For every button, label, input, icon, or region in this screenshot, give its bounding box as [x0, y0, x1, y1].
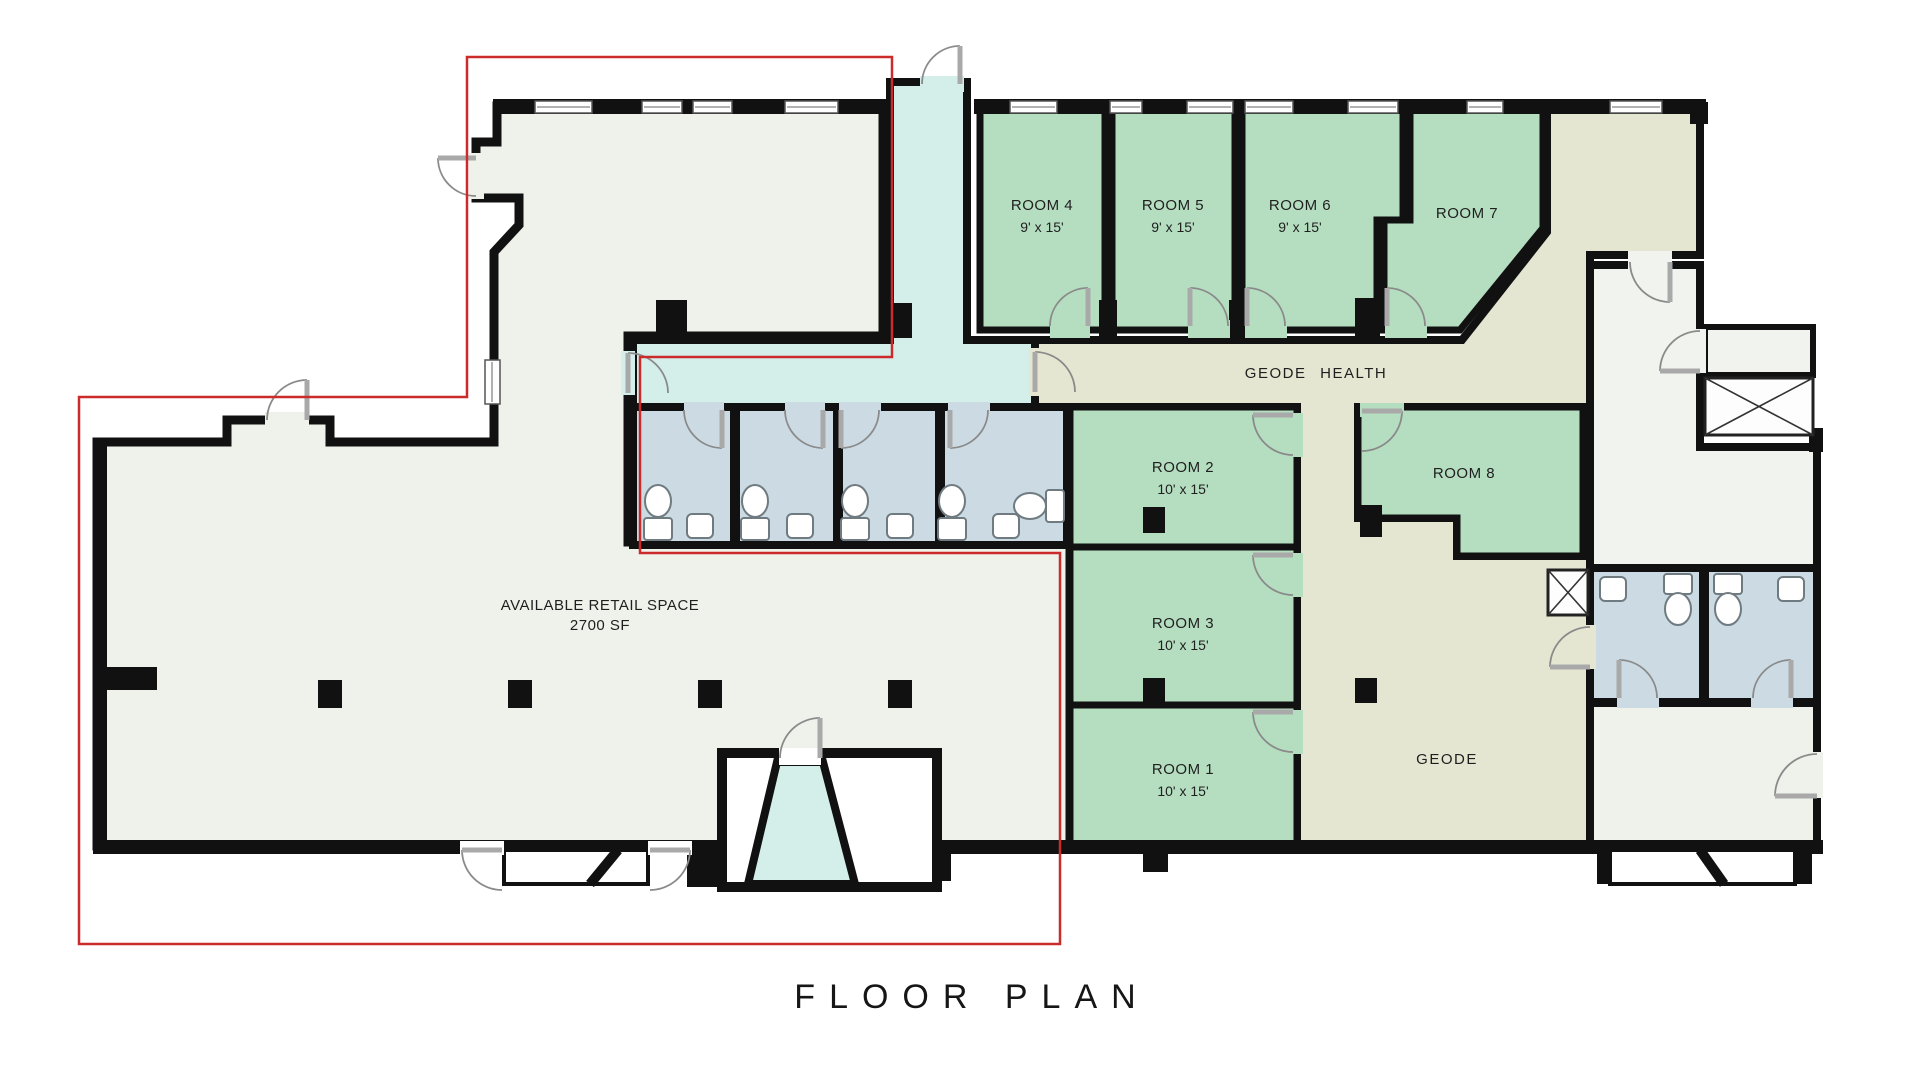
column	[1360, 505, 1382, 537]
toilet	[938, 485, 966, 540]
opening	[1289, 413, 1303, 457]
opening	[1584, 625, 1596, 669]
room-6-label: ROOM 6	[1269, 197, 1331, 214]
wall-stub	[883, 303, 912, 338]
room-2-dims: 10' x 15'	[1157, 481, 1208, 497]
opening	[1245, 320, 1287, 338]
room-5-label: ROOM 5	[1142, 197, 1204, 214]
room-4-label: ROOM 4	[1011, 197, 1073, 214]
bottom-right-room	[1590, 703, 1817, 846]
wall	[974, 99, 1706, 114]
sink	[687, 514, 713, 538]
opening	[1628, 251, 1672, 271]
sink	[1600, 577, 1626, 601]
door-jamb	[1355, 298, 1380, 338]
room-8-label: ROOM 8	[1433, 465, 1495, 482]
toilet	[1664, 574, 1692, 625]
right-annex-room	[1705, 327, 1813, 375]
toilet	[1714, 574, 1742, 625]
room-2-area	[1070, 407, 1297, 547]
opening	[839, 402, 881, 416]
opening	[684, 402, 724, 416]
opening	[785, 402, 825, 416]
column	[1355, 678, 1377, 703]
door-swing-arc	[462, 850, 502, 890]
floor-plan-drawing: ROOM 4 9' x 15' ROOM 5 9' x 15' ROOM 6 9…	[0, 0, 1920, 1075]
opening	[1050, 320, 1090, 338]
wall	[93, 438, 107, 852]
page-title: FLOOR PLAN	[794, 978, 1149, 1016]
opening	[920, 76, 964, 92]
pier	[687, 843, 722, 887]
opening	[265, 412, 309, 428]
corner-block	[1690, 102, 1708, 124]
toilet	[741, 485, 769, 540]
door-jamb	[1229, 300, 1247, 338]
sink	[1778, 577, 1804, 601]
pier	[1795, 843, 1812, 884]
opening	[1289, 710, 1303, 754]
room-3-label: ROOM 3	[1152, 615, 1214, 632]
opening	[1385, 320, 1427, 338]
column	[318, 680, 342, 708]
column	[698, 680, 722, 708]
room-1-dims: 10' x 15'	[1157, 783, 1208, 799]
opening	[948, 402, 990, 416]
sink	[787, 514, 813, 538]
room-2-label: ROOM 2	[1152, 459, 1214, 476]
opening	[1289, 553, 1303, 597]
room-3-dims: 10' x 15'	[1157, 637, 1208, 653]
opening	[1751, 694, 1793, 708]
storefront-bay	[504, 850, 648, 884]
opening	[1617, 694, 1659, 708]
restroom-divider	[1699, 572, 1709, 698]
column	[1143, 507, 1165, 533]
room-4-dims: 9' x 15'	[1020, 219, 1063, 235]
pier	[1143, 846, 1168, 872]
geode-health-label: GEODE HEALTH	[1245, 365, 1387, 382]
opening	[779, 748, 821, 765]
column	[888, 680, 912, 708]
room-5-area	[1112, 106, 1235, 330]
sink	[887, 514, 913, 538]
room-1-label: ROOM 1	[1152, 761, 1214, 778]
sink	[993, 514, 1019, 538]
room-7-label: ROOM 7	[1436, 205, 1498, 222]
toilet	[644, 485, 672, 540]
column	[508, 680, 532, 708]
floor-plan-page: ROOM 4 9' x 15' ROOM 5 9' x 15' ROOM 6 9…	[0, 0, 1920, 1075]
wall-stub	[656, 300, 687, 338]
column	[1143, 678, 1165, 705]
door-swing-arc	[650, 850, 690, 890]
floor-areas	[97, 82, 1817, 846]
opening	[1811, 752, 1823, 798]
toilet	[1014, 490, 1064, 522]
opening	[1694, 329, 1706, 373]
opening	[1188, 320, 1230, 338]
toilet	[841, 485, 869, 540]
retail-label: AVAILABLE RETAIL SPACE	[501, 597, 700, 614]
geode-label: GEODE	[1416, 751, 1478, 768]
room-6-area	[1242, 106, 1403, 330]
wall-stub	[99, 667, 157, 690]
room-5-dims: 9' x 15'	[1151, 219, 1194, 235]
entry-vestibule	[722, 753, 937, 887]
retail-area: 2700 SF	[570, 617, 630, 634]
restroom-divider	[730, 411, 740, 541]
room-6-dims: 9' x 15'	[1278, 219, 1321, 235]
door-jamb	[1099, 300, 1117, 338]
